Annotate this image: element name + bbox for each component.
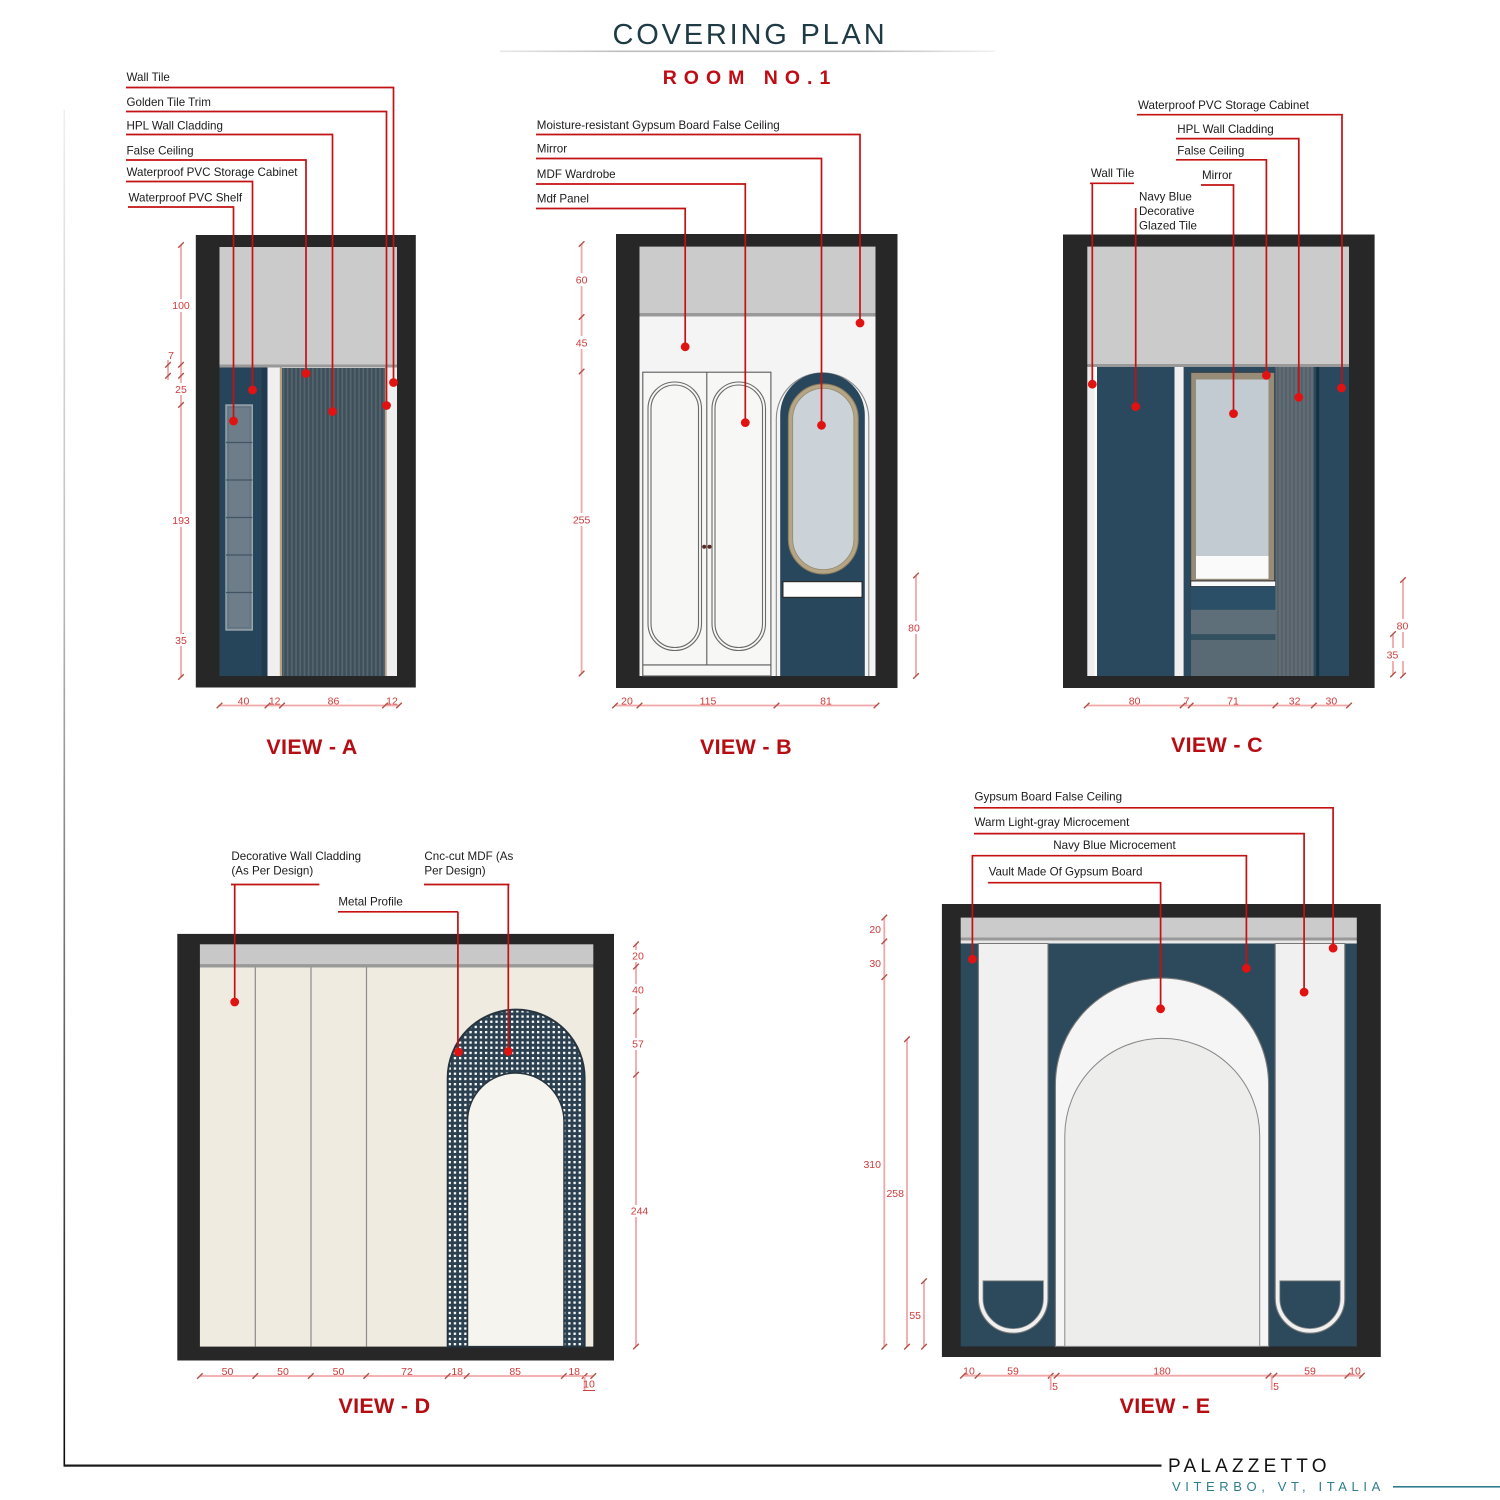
svg-text:Wall Tile: Wall Tile xyxy=(127,71,170,84)
svg-text:False Ceiling: False Ceiling xyxy=(1177,145,1244,158)
svg-text:7: 7 xyxy=(1184,695,1190,707)
svg-text:Wall Tile: Wall Tile xyxy=(1091,167,1134,180)
svg-text:10: 10 xyxy=(1349,1366,1361,1378)
svg-text:258: 258 xyxy=(886,1188,904,1200)
svg-text:Waterproof PVC Storage Cabinet: Waterproof PVC Storage Cabinet xyxy=(127,166,299,179)
svg-text:180: 180 xyxy=(1153,1366,1171,1378)
svg-text:80: 80 xyxy=(1397,621,1409,633)
svg-text:255: 255 xyxy=(573,515,591,527)
svg-text:HPL Wall Cladding: HPL Wall Cladding xyxy=(1177,123,1273,136)
svg-text:30: 30 xyxy=(1326,695,1338,707)
svg-text:115: 115 xyxy=(700,695,717,707)
svg-text:7: 7 xyxy=(168,350,174,362)
svg-text:Vault Made Of Gypsum Board: Vault Made Of Gypsum Board xyxy=(989,865,1143,878)
svg-text:57: 57 xyxy=(632,1039,644,1051)
svg-text:(As Per Design): (As Per Design) xyxy=(231,865,313,878)
svg-text:Navy Blue: Navy Blue xyxy=(1139,191,1192,204)
svg-text:10: 10 xyxy=(963,1366,975,1378)
svg-text:Warm Light-gray Microcement: Warm Light-gray Microcement xyxy=(975,816,1131,829)
svg-text:ROOM NO.1: ROOM NO.1 xyxy=(663,67,838,89)
svg-text:60: 60 xyxy=(576,275,588,287)
svg-text:HPL Wall Cladding: HPL Wall Cladding xyxy=(127,120,223,133)
svg-text:Moisture-resistant Gypsum Boar: Moisture-resistant Gypsum Board False Ce… xyxy=(537,119,780,132)
svg-text:False Ceiling: False Ceiling xyxy=(127,145,194,158)
svg-text:59: 59 xyxy=(1304,1366,1316,1378)
svg-text:244: 244 xyxy=(631,1206,649,1218)
svg-text:81: 81 xyxy=(820,695,832,707)
svg-text:100: 100 xyxy=(172,300,190,312)
svg-text:5: 5 xyxy=(1273,1381,1279,1393)
svg-text:10: 10 xyxy=(583,1379,595,1391)
svg-text:50: 50 xyxy=(277,1366,289,1378)
svg-text:20: 20 xyxy=(869,924,881,936)
svg-text:Decorative: Decorative xyxy=(1139,205,1194,218)
svg-text:85: 85 xyxy=(509,1366,521,1378)
svg-text:VIEW - A: VIEW - A xyxy=(266,735,357,759)
svg-text:20: 20 xyxy=(632,951,644,963)
svg-text:Golden Tile Trim: Golden Tile Trim xyxy=(127,96,211,109)
svg-text:5: 5 xyxy=(1052,1381,1058,1393)
svg-text:VIEW - B: VIEW - B xyxy=(700,735,792,759)
svg-text:Per Design): Per Design) xyxy=(424,865,485,878)
svg-text:193: 193 xyxy=(172,515,190,527)
svg-text:72: 72 xyxy=(401,1366,413,1378)
svg-text:12: 12 xyxy=(269,695,281,707)
svg-text:18: 18 xyxy=(568,1366,580,1378)
svg-text:VIEW - E: VIEW - E xyxy=(1120,1394,1211,1418)
svg-text:Mirror: Mirror xyxy=(537,143,567,156)
svg-text:32: 32 xyxy=(1289,695,1301,707)
svg-text:50: 50 xyxy=(333,1366,345,1378)
svg-text:40: 40 xyxy=(238,695,250,707)
svg-text:Mdf Panel: Mdf Panel xyxy=(537,193,589,206)
svg-text:Mirror: Mirror xyxy=(1202,169,1232,182)
svg-text:80: 80 xyxy=(1129,695,1141,707)
svg-text:PALAZZETTO: PALAZZETTO xyxy=(1168,1456,1331,1477)
svg-text:30: 30 xyxy=(869,958,881,970)
svg-text:71: 71 xyxy=(1227,695,1239,707)
svg-text:Waterproof PVC Shelf: Waterproof PVC Shelf xyxy=(129,192,243,205)
svg-text:310: 310 xyxy=(863,1159,881,1171)
svg-text:Navy Blue Microcement: Navy Blue Microcement xyxy=(1053,839,1176,852)
svg-text:59: 59 xyxy=(1007,1366,1019,1378)
svg-text:86: 86 xyxy=(328,695,340,707)
svg-text:VITERBO, VT, ITALIA: VITERBO, VT, ITALIA xyxy=(1172,1479,1385,1494)
svg-text:20: 20 xyxy=(621,695,633,707)
svg-text:40: 40 xyxy=(632,985,644,997)
svg-text:Glazed Tile: Glazed Tile xyxy=(1139,220,1197,233)
svg-text:VIEW - D: VIEW - D xyxy=(339,1394,431,1418)
svg-text:25: 25 xyxy=(175,384,187,396)
svg-text:Gypsum Board False Ceiling: Gypsum Board False Ceiling xyxy=(975,791,1123,804)
svg-text:35: 35 xyxy=(175,635,187,647)
svg-text:50: 50 xyxy=(222,1366,234,1378)
svg-text:12: 12 xyxy=(386,695,398,707)
svg-text:35: 35 xyxy=(1387,650,1399,662)
svg-text:Cnc-cut MDF (As: Cnc-cut MDF (As xyxy=(424,850,513,863)
svg-text:VIEW - C: VIEW - C xyxy=(1171,733,1263,757)
svg-text:Waterproof PVC Storage Cabinet: Waterproof PVC Storage Cabinet xyxy=(1138,99,1310,112)
svg-text:MDF Wardrobe: MDF Wardrobe xyxy=(537,168,616,181)
svg-text:Decorative Wall Cladding: Decorative Wall Cladding xyxy=(231,850,361,863)
svg-text:45: 45 xyxy=(576,338,588,350)
svg-text:80: 80 xyxy=(908,623,920,635)
svg-text:Metal Profile: Metal Profile xyxy=(338,896,402,909)
svg-text:COVERING PLAN: COVERING PLAN xyxy=(613,19,888,51)
svg-text:18: 18 xyxy=(451,1366,463,1378)
svg-text:55: 55 xyxy=(909,1310,921,1322)
